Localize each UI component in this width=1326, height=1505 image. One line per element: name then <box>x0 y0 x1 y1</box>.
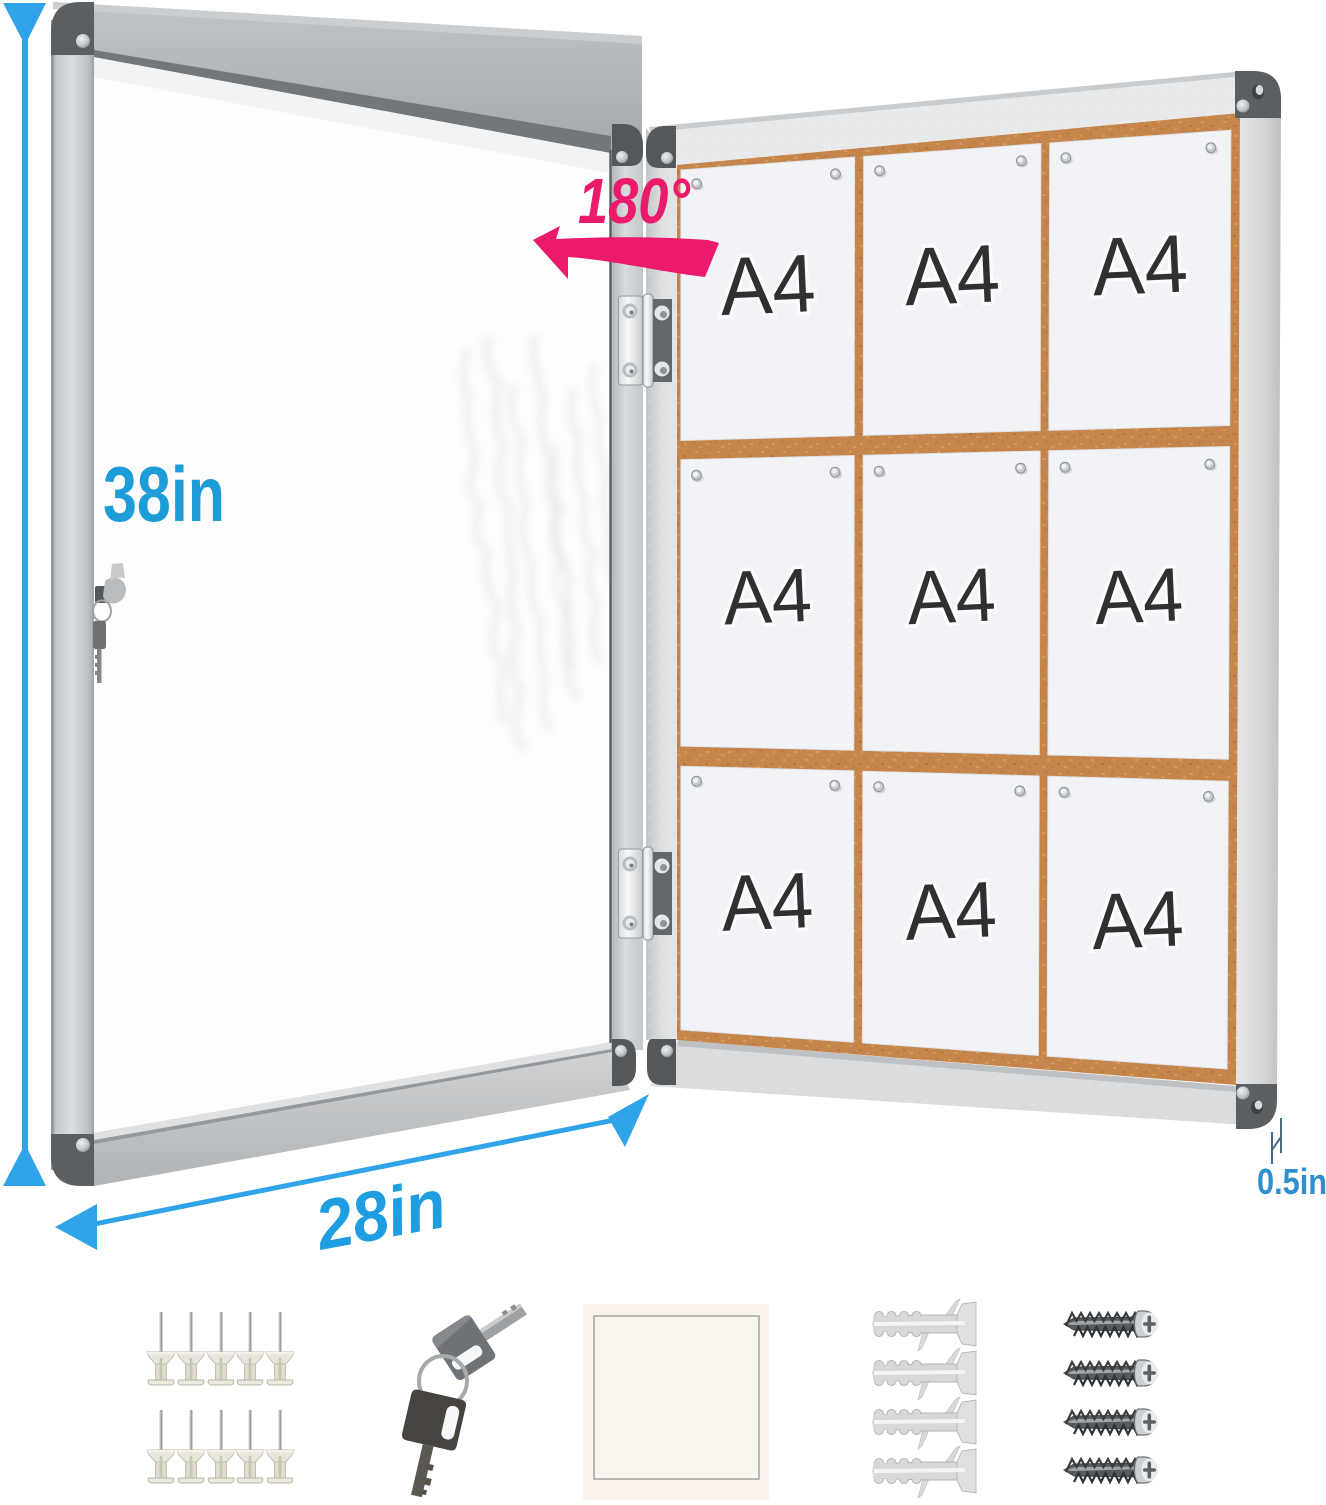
svg-text:A4: A4 <box>722 552 814 641</box>
svg-text:A4: A4 <box>902 227 1001 322</box>
svg-text:A4: A4 <box>1090 218 1189 313</box>
svg-text:0.5in: 0.5in <box>1257 1161 1326 1202</box>
svg-text:A4: A4 <box>718 237 817 332</box>
svg-text:38in: 38in <box>103 450 225 538</box>
svg-text:A4: A4 <box>905 552 997 641</box>
svg-text:A4: A4 <box>719 856 815 948</box>
svg-text:A4: A4 <box>1090 875 1186 967</box>
svg-text:180°: 180° <box>578 165 690 237</box>
svg-text:A4: A4 <box>1093 552 1185 641</box>
svg-text:A4: A4 <box>903 865 999 957</box>
